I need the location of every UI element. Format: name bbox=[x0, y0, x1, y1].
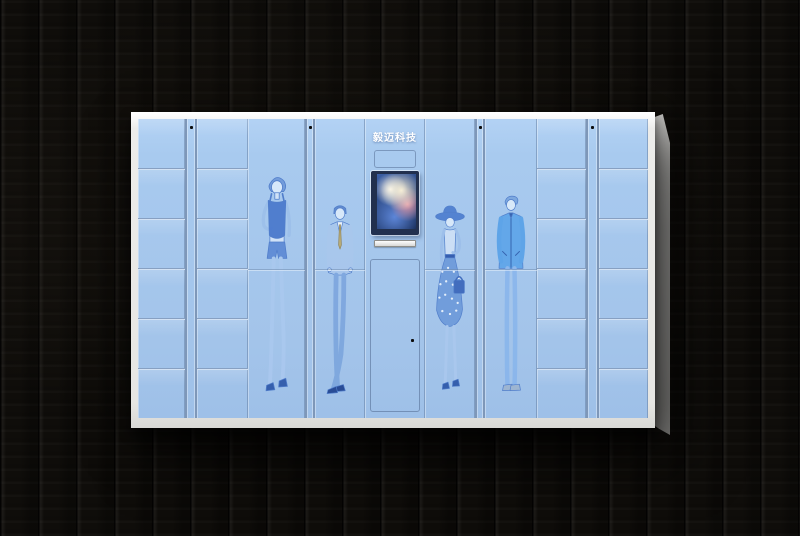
fashion-figure-woman-sun-hat bbox=[426, 149, 474, 406]
column-post bbox=[475, 119, 485, 418]
lock-dot-icon bbox=[309, 126, 312, 129]
tall-door-man-suit[interactable] bbox=[315, 119, 365, 418]
locker-door[interactable] bbox=[599, 318, 648, 368]
machine-front-face: 毅迈科技 bbox=[138, 119, 648, 418]
locker-door[interactable] bbox=[537, 368, 586, 418]
locker-door[interactable] bbox=[138, 168, 185, 218]
control-console: 毅迈科技 bbox=[365, 119, 425, 418]
machine-shell: 毅迈科技 bbox=[131, 112, 655, 428]
locker-door[interactable] bbox=[138, 119, 185, 168]
locker-door[interactable] bbox=[537, 318, 586, 368]
fashion-figure-woman-tank-top bbox=[249, 149, 304, 406]
lock-dot-icon bbox=[190, 126, 193, 129]
screen-content bbox=[377, 174, 416, 229]
locker-door[interactable] bbox=[537, 268, 586, 318]
lock-dot-icon bbox=[411, 339, 414, 342]
tall-door-woman-tank-top[interactable] bbox=[248, 119, 305, 418]
console-service-door[interactable] bbox=[370, 259, 420, 412]
fashion-figure-man-suit bbox=[316, 149, 364, 406]
touch-screen[interactable] bbox=[371, 171, 419, 235]
locker-column-c bbox=[537, 119, 586, 418]
locker-door[interactable] bbox=[138, 268, 185, 318]
tall-door-woman-sun-hat[interactable] bbox=[425, 119, 475, 418]
locker-door[interactable] bbox=[599, 218, 648, 268]
lock-dot-icon bbox=[479, 126, 482, 129]
locker-door[interactable] bbox=[599, 168, 648, 218]
card-slot[interactable] bbox=[374, 240, 416, 247]
locker-door[interactable] bbox=[197, 168, 248, 218]
tall-door-man-casual[interactable] bbox=[485, 119, 537, 418]
locker-door[interactable] bbox=[197, 218, 248, 268]
column-post bbox=[305, 119, 315, 418]
locker-door[interactable] bbox=[138, 218, 185, 268]
locker-door[interactable] bbox=[599, 268, 648, 318]
locker-column-b bbox=[197, 119, 248, 418]
locker-door[interactable] bbox=[537, 119, 586, 168]
locker-door[interactable] bbox=[138, 318, 185, 368]
smart-locker-machine: 毅迈科技 bbox=[131, 112, 670, 436]
locker-door[interactable] bbox=[599, 368, 648, 418]
blank-sign-panel bbox=[374, 150, 416, 168]
locker-door[interactable] bbox=[599, 119, 648, 168]
locker-column-d bbox=[599, 119, 648, 418]
locker-door[interactable] bbox=[138, 368, 185, 418]
wood-background: 毅迈科技 bbox=[0, 0, 800, 536]
column-post bbox=[185, 119, 197, 418]
locker-door[interactable] bbox=[197, 318, 248, 368]
locker-door[interactable] bbox=[197, 119, 248, 168]
locker-door[interactable] bbox=[197, 368, 248, 418]
lock-dot-icon bbox=[591, 126, 594, 129]
locker-column-a bbox=[138, 119, 185, 418]
locker-door[interactable] bbox=[197, 268, 248, 318]
brand-logo: 毅迈科技 bbox=[373, 134, 417, 144]
locker-door[interactable] bbox=[537, 218, 586, 268]
column-post bbox=[586, 119, 599, 418]
fashion-figure-man-casual bbox=[486, 149, 536, 406]
locker-door[interactable] bbox=[537, 168, 586, 218]
machine-side-panel bbox=[654, 114, 670, 435]
